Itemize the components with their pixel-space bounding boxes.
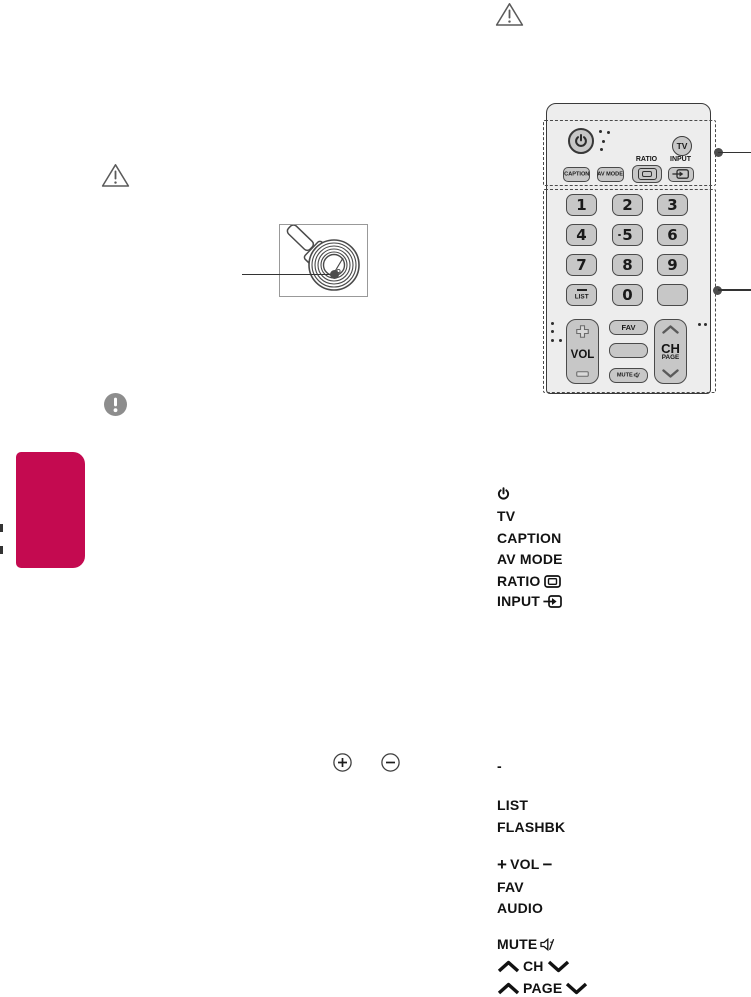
antenna-pin-callout-dot — [330, 270, 339, 279]
ratio-icon — [544, 575, 561, 588]
remote-top-cluster-outline — [543, 120, 716, 186]
chevron-down-icon — [547, 960, 570, 973]
edge-tick-mark — [0, 524, 3, 532]
legend-ratio: RATIO — [497, 574, 561, 589]
power-icon — [497, 487, 510, 501]
volume-minus-circled-icon — [381, 753, 400, 777]
legend-fav: FAV — [497, 880, 524, 895]
callout-line — [718, 152, 751, 154]
legend-page: PAGE — [497, 981, 588, 996]
chevron-up-icon — [497, 982, 520, 995]
remote-control-figure: TV CAPTION AV MODE RATIO INPUT 1 2 3 4 5… — [534, 100, 751, 400]
legend-caption: CAPTION — [497, 531, 561, 546]
legend-top-group: TV CAPTION AV MODE RATIO INPUT — [497, 487, 617, 617]
remote-keypad-outline — [543, 189, 716, 393]
mute-speaker-icon — [540, 937, 555, 952]
legend-av-mode: AV MODE — [497, 552, 563, 567]
legend-bottom-group: - LIST FLASHBK + VOL − FAV AUDIO MUTE CH — [497, 759, 637, 997]
warning-triangle-icon — [495, 2, 524, 32]
legend-ch: CH — [497, 959, 570, 974]
volume-plus-circled-icon — [333, 753, 352, 777]
legend-dash: - — [497, 759, 502, 774]
antenna-connector-figure — [279, 224, 368, 297]
legend-vol: + VOL − — [497, 857, 553, 872]
legend-mute: MUTE — [497, 937, 555, 952]
input-icon — [543, 595, 562, 608]
note-icon — [104, 393, 127, 421]
legend-tv: TV — [497, 509, 515, 524]
antenna-pin-callout-line — [242, 274, 335, 276]
callout-line — [718, 289, 751, 291]
legend-list: LIST — [497, 798, 528, 813]
plus-glyph: + — [497, 857, 507, 872]
legend-flashbk: FLASHBK — [497, 820, 565, 835]
warning-triangle-icon — [101, 163, 130, 193]
edge-tick-mark — [0, 546, 3, 554]
minus-glyph: − — [543, 857, 553, 872]
coax-connector-illustration — [280, 225, 366, 295]
legend-power — [497, 487, 510, 501]
legend-input: INPUT — [497, 594, 562, 609]
chapter-tab — [16, 452, 85, 568]
chevron-down-icon — [565, 982, 588, 995]
chevron-up-icon — [497, 960, 520, 973]
legend-audio: AUDIO — [497, 901, 543, 916]
